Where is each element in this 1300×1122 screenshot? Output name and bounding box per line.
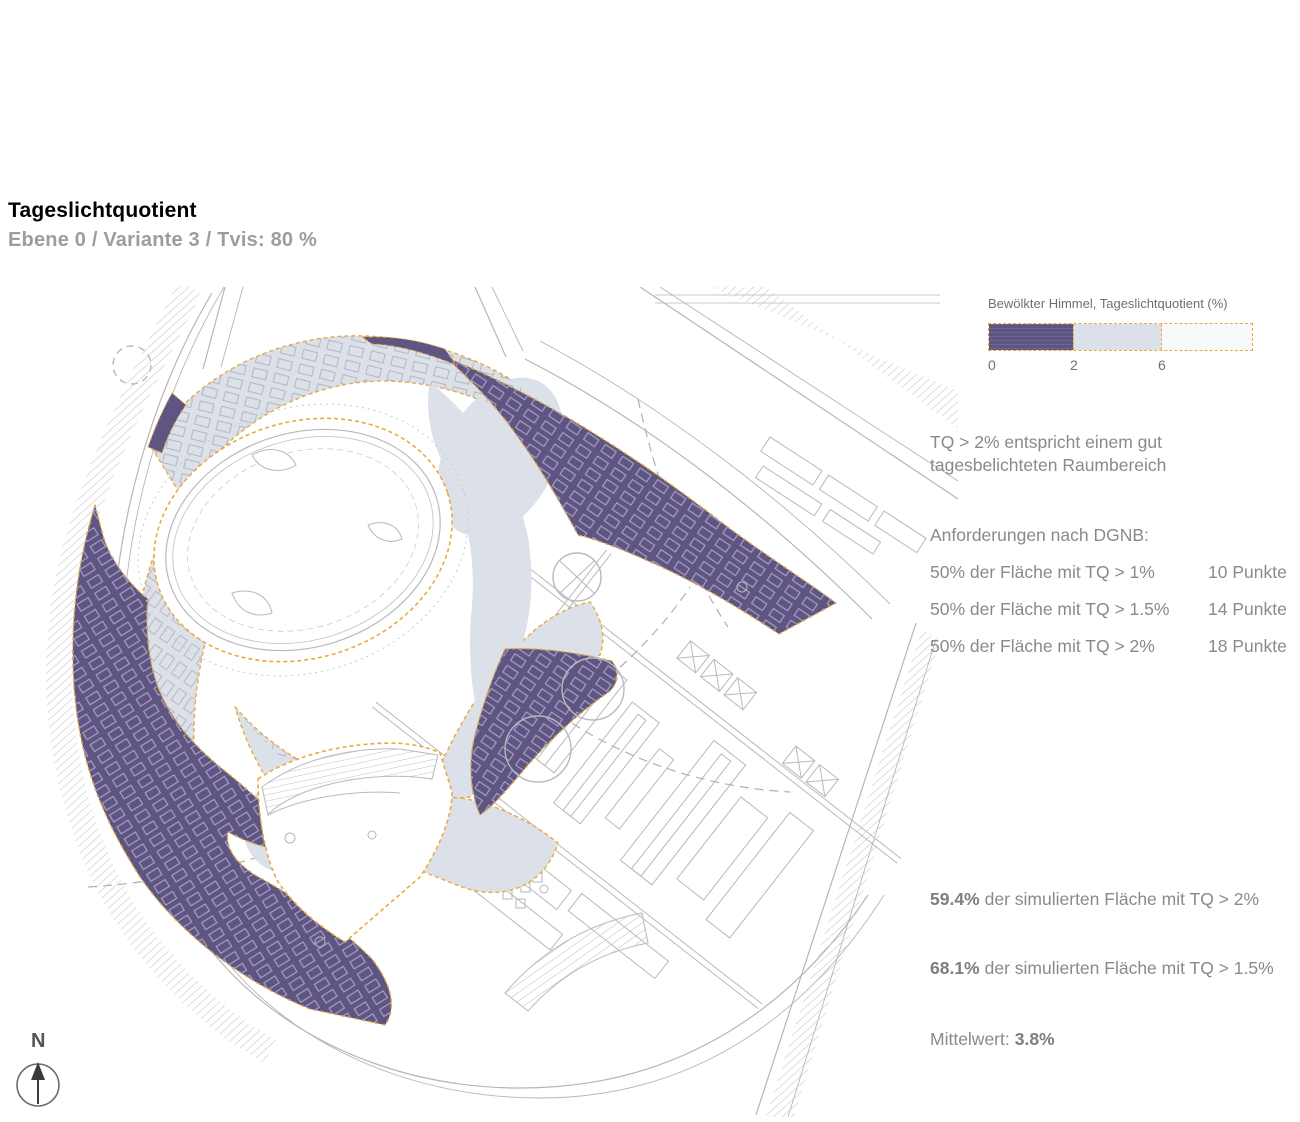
tq-note: TQ > 2% entspricht einem gut tagesbelich… bbox=[930, 431, 1166, 477]
dgnb-requirements: Anforderungen nach DGNB: 50% der Fläche … bbox=[930, 525, 1300, 657]
daylight-simulation-drawing bbox=[0, 287, 960, 1117]
page-title: Tageslichtquotient bbox=[8, 199, 317, 223]
site-plan-map bbox=[0, 287, 960, 1117]
result-tq2-text: der simulierten Fläche mit TQ > 2% bbox=[985, 889, 1259, 909]
legend-segment-above-6 bbox=[1161, 324, 1252, 350]
dgnb-points: 14 Punkte bbox=[1208, 599, 1287, 620]
result-tq2: 59.4%der simulierten Fläche mit TQ > 2% bbox=[930, 889, 1259, 910]
north-arrow: N bbox=[10, 1030, 70, 1116]
legend-title: Bewölkter Himmel, Tageslichtquotient (%) bbox=[988, 296, 1260, 311]
legend-tick-6: 6 bbox=[1158, 357, 1166, 373]
legend-ticks: 0 2 6 bbox=[988, 357, 1260, 375]
dgnb-points: 10 Punkte bbox=[1208, 562, 1287, 583]
dgnb-requirement: 50% der Fläche mit TQ > 2% bbox=[930, 636, 1208, 657]
daylight-legend: Bewölkter Himmel, Tageslichtquotient (%)… bbox=[988, 296, 1260, 375]
dgnb-requirement: 50% der Fläche mit TQ > 1% bbox=[930, 562, 1208, 583]
dgnb-row: 50% der Fläche mit TQ > 1% 10 Punkte bbox=[930, 562, 1300, 583]
legend-segment-2-6 bbox=[1073, 324, 1160, 350]
dgnb-requirement: 50% der Fläche mit TQ > 1.5% bbox=[930, 599, 1208, 620]
page-subtitle: Ebene 0 / Variante 3 / Tvis: 80 % bbox=[8, 229, 317, 252]
dgnb-row: 50% der Fläche mit TQ > 2% 18 Punkte bbox=[930, 636, 1300, 657]
legend-tick-0: 0 bbox=[988, 357, 996, 373]
result-mittelwert: Mittelwert:3.8% bbox=[930, 1029, 1055, 1050]
dgnb-points: 18 Punkte bbox=[1208, 636, 1287, 657]
header: Tageslichtquotient Ebene 0 / Variante 3 … bbox=[8, 199, 317, 252]
legend-tick-2: 2 bbox=[1070, 357, 1078, 373]
dgnb-row: 50% der Fläche mit TQ > 1.5% 14 Punkte bbox=[930, 599, 1300, 620]
north-label: N bbox=[31, 1030, 45, 1053]
mittelwert-label: Mittelwert: bbox=[930, 1029, 1010, 1049]
mittelwert-value: 3.8% bbox=[1015, 1029, 1055, 1049]
legend-color-bar bbox=[988, 323, 1253, 351]
result-tq15: 68.1%der simulierten Fläche mit TQ > 1.5… bbox=[930, 958, 1274, 979]
result-tq15-text: der simulierten Fläche mit TQ > 1.5% bbox=[985, 958, 1274, 978]
tq-note-line1: TQ > 2% entspricht einem gut bbox=[930, 431, 1166, 454]
legend-segment-0-2 bbox=[989, 324, 1073, 350]
result-tq2-value: 59.4% bbox=[930, 889, 980, 909]
dgnb-heading: Anforderungen nach DGNB: bbox=[930, 525, 1300, 546]
tq-note-line2: tagesbelichteten Raumbereich bbox=[930, 454, 1166, 477]
result-tq15-value: 68.1% bbox=[930, 958, 980, 978]
